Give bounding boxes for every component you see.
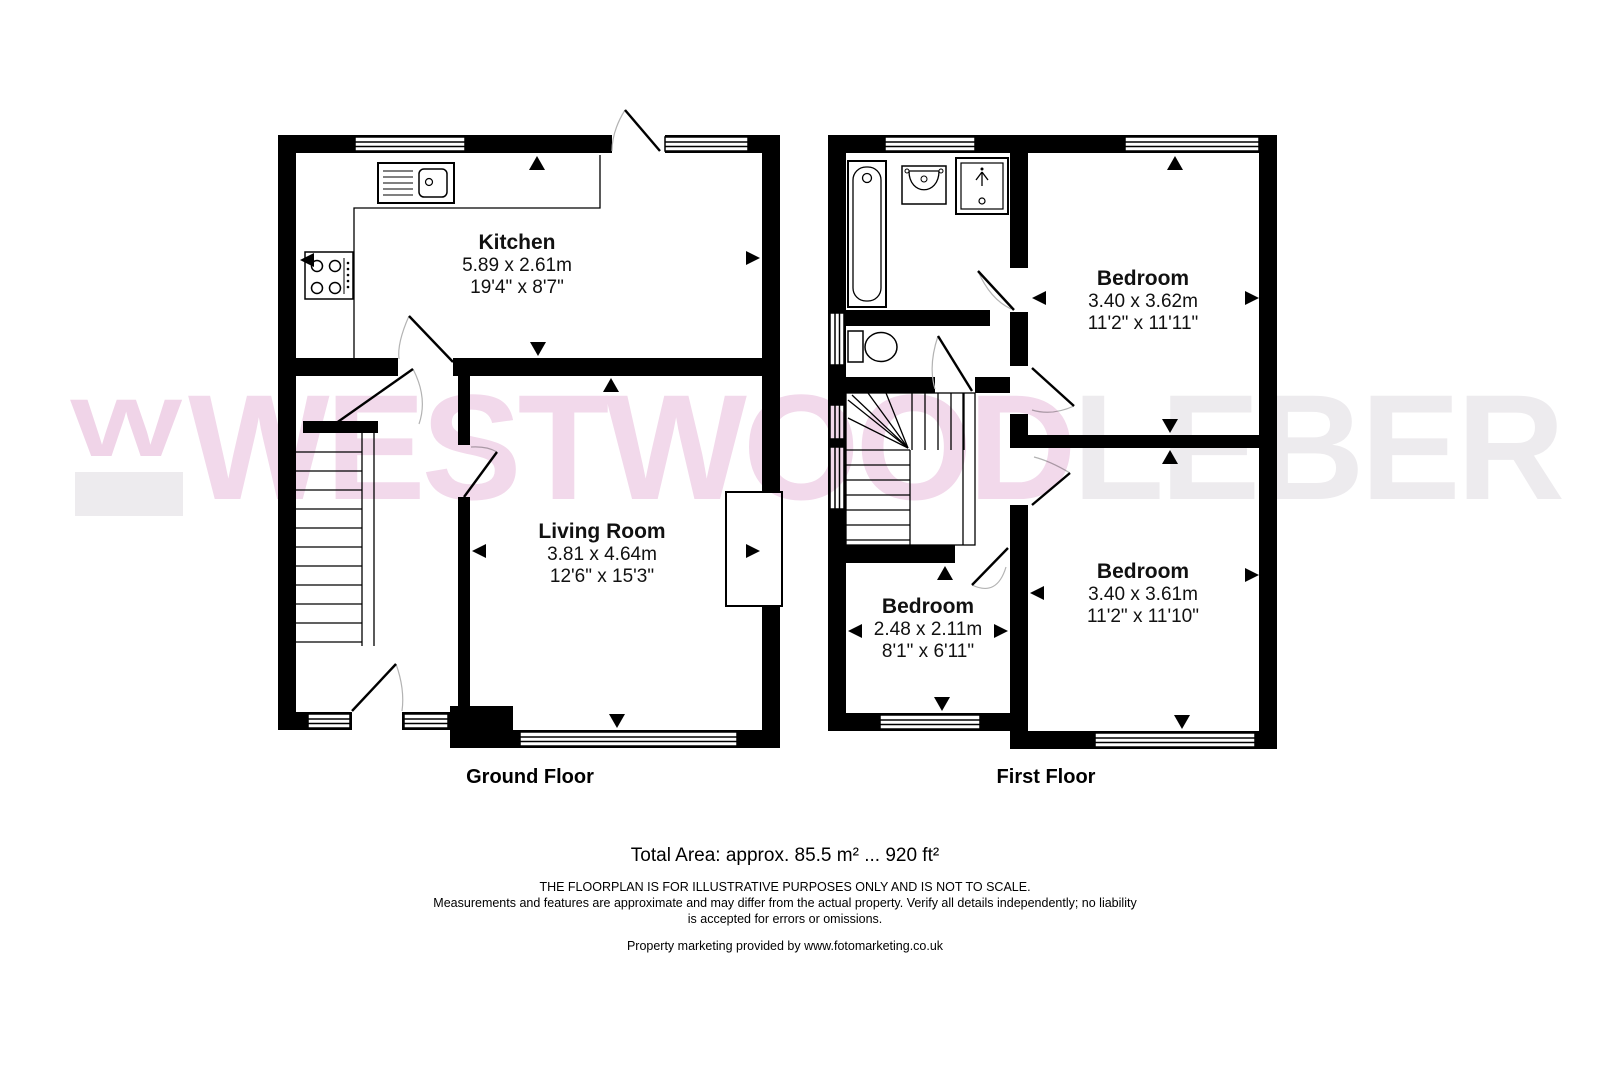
bedroom-bottom-metric: 3.40 x 3.61m <box>1088 584 1198 605</box>
bedroom-small-label: Bedroom <box>882 595 974 618</box>
bedroom-small-imperial: 8'1" x 6'11" <box>882 641 974 662</box>
living-room-label: Living Room <box>538 520 665 543</box>
first-floor-plan: Bedroom 3.40 x 3.62m 11'2" x 11'11" Bedr… <box>828 135 1277 749</box>
first-floor-label: First Floor <box>997 766 1096 789</box>
marketing-credit: Property marketing provided by www.fotom… <box>627 939 943 953</box>
disclaimer-line-1: THE FLOORPLAN IS FOR ILLUSTRATIVE PURPOS… <box>539 880 1030 894</box>
window <box>665 137 748 151</box>
living-room-imperial: 12'6" x 15'3" <box>550 566 654 587</box>
first-staircase <box>846 393 975 545</box>
ground-staircase <box>296 433 374 646</box>
bay-window <box>520 732 737 746</box>
kitchen-metric: 5.89 x 2.61m <box>462 255 572 276</box>
bedroom-top-label: Bedroom <box>1097 267 1189 290</box>
floorplan-page: Kitchen 5.89 x 2.61m 19'4" x 8'7" Living… <box>0 0 1620 1080</box>
bedroom-top-metric: 3.40 x 3.62m <box>1088 291 1198 312</box>
window <box>1125 137 1259 151</box>
kitchen-imperial: 19'4" x 8'7" <box>470 277 564 298</box>
kitchen-sink <box>378 163 454 203</box>
disclaimer-line-3: is accepted for errors or omissions. <box>688 912 883 926</box>
bedroom-small-metric: 2.48 x 2.11m <box>874 619 982 640</box>
brand-logo: W <box>70 388 185 518</box>
window <box>404 714 448 728</box>
ground-floor-label: Ground Floor <box>466 766 594 789</box>
window <box>880 715 980 729</box>
kitchen-label: Kitchen <box>478 231 555 254</box>
window <box>355 137 465 151</box>
window <box>1095 733 1255 747</box>
toilet <box>848 331 897 362</box>
window <box>885 137 975 151</box>
bedroom-top-imperial: 11'2" x 11'11" <box>1088 313 1199 334</box>
disclaimer-line-2: Measurements and features are approximat… <box>433 896 1136 910</box>
brand-logo-square <box>75 472 183 516</box>
bedroom-bottom-label: Bedroom <box>1097 560 1189 583</box>
window <box>830 313 844 365</box>
ground-walls <box>278 135 780 748</box>
window <box>308 714 350 728</box>
shower <box>956 158 1008 214</box>
brand-logo-letter: W <box>70 388 182 470</box>
bathtub <box>848 161 886 307</box>
wash-basin <box>902 166 946 204</box>
total-area-text: Total Area: approx. 85.5 m² ... 920 ft² <box>631 845 939 867</box>
ground-door-openings <box>352 134 665 731</box>
window <box>830 405 844 439</box>
living-room-metric: 3.81 x 4.64m <box>547 544 657 565</box>
window <box>830 447 844 509</box>
ground-floor-plan: Kitchen 5.89 x 2.61m 19'4" x 8'7" Living… <box>278 110 782 748</box>
bedroom-bottom-imperial: 11'2" x 11'10" <box>1087 606 1199 627</box>
